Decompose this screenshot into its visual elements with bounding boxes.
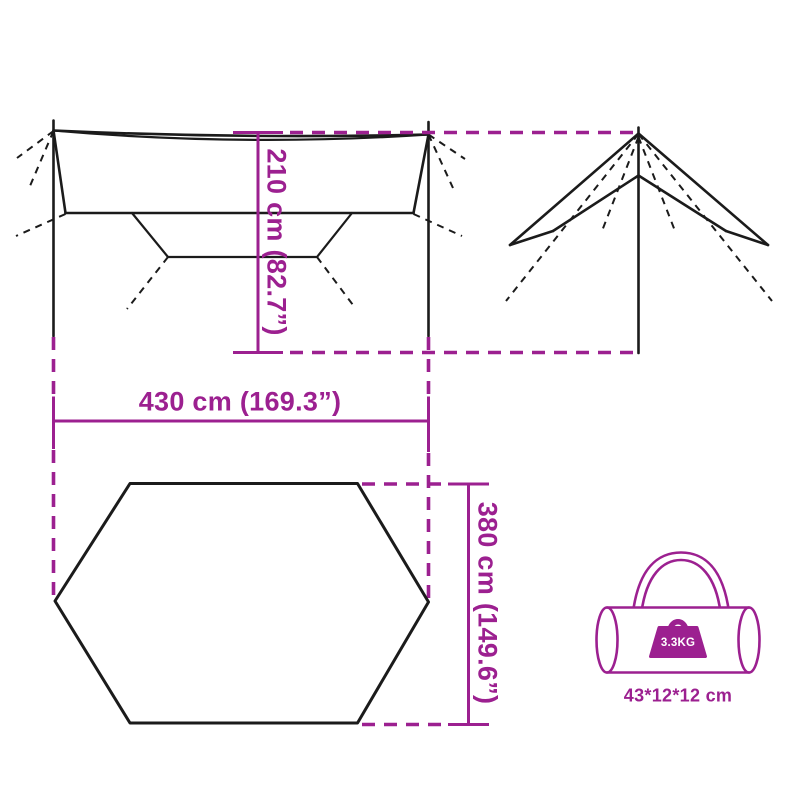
guy-line-front-right-3 — [414, 214, 463, 236]
bag-handle-outer — [633, 553, 729, 613]
guy-line-side-right-long — [639, 134, 773, 301]
bag-handle-inner — [642, 560, 721, 612]
guy-line-skirt-left — [127, 257, 168, 309]
height-dimension-label: 210 cm (82.7”) — [261, 148, 292, 335]
guy-line-side-left-long — [506, 134, 639, 301]
hexagon-outline — [55, 484, 429, 724]
front-view — [16, 121, 465, 337]
tarp-diagram-svg — [0, 0, 800, 800]
width-dimension-label: 430 cm (169.3”) — [139, 387, 342, 418]
bag-size-label: 43*12*12 cm — [624, 686, 732, 707]
side-view — [506, 128, 772, 354]
bag-illustration — [597, 553, 760, 673]
bag-weight-label: 3.3KG — [661, 637, 695, 649]
guy-line-side-right-short — [639, 137, 677, 234]
width-dimension — [54, 337, 429, 601]
guy-line-front-left-3 — [16, 214, 66, 236]
tarp-skirt-outline — [132, 213, 352, 257]
tarp-right-edge — [414, 135, 429, 214]
depth-dimension-label: 380 cm (149.6”) — [472, 502, 503, 705]
height-dimension — [233, 133, 636, 353]
diagram-canvas: 210 cm (82.7”) 430 cm (169.3”) 380 cm (1… — [0, 0, 800, 800]
guy-line-skirt-right — [317, 257, 356, 309]
tarp-left-edge — [54, 131, 66, 214]
top-view — [55, 484, 429, 724]
